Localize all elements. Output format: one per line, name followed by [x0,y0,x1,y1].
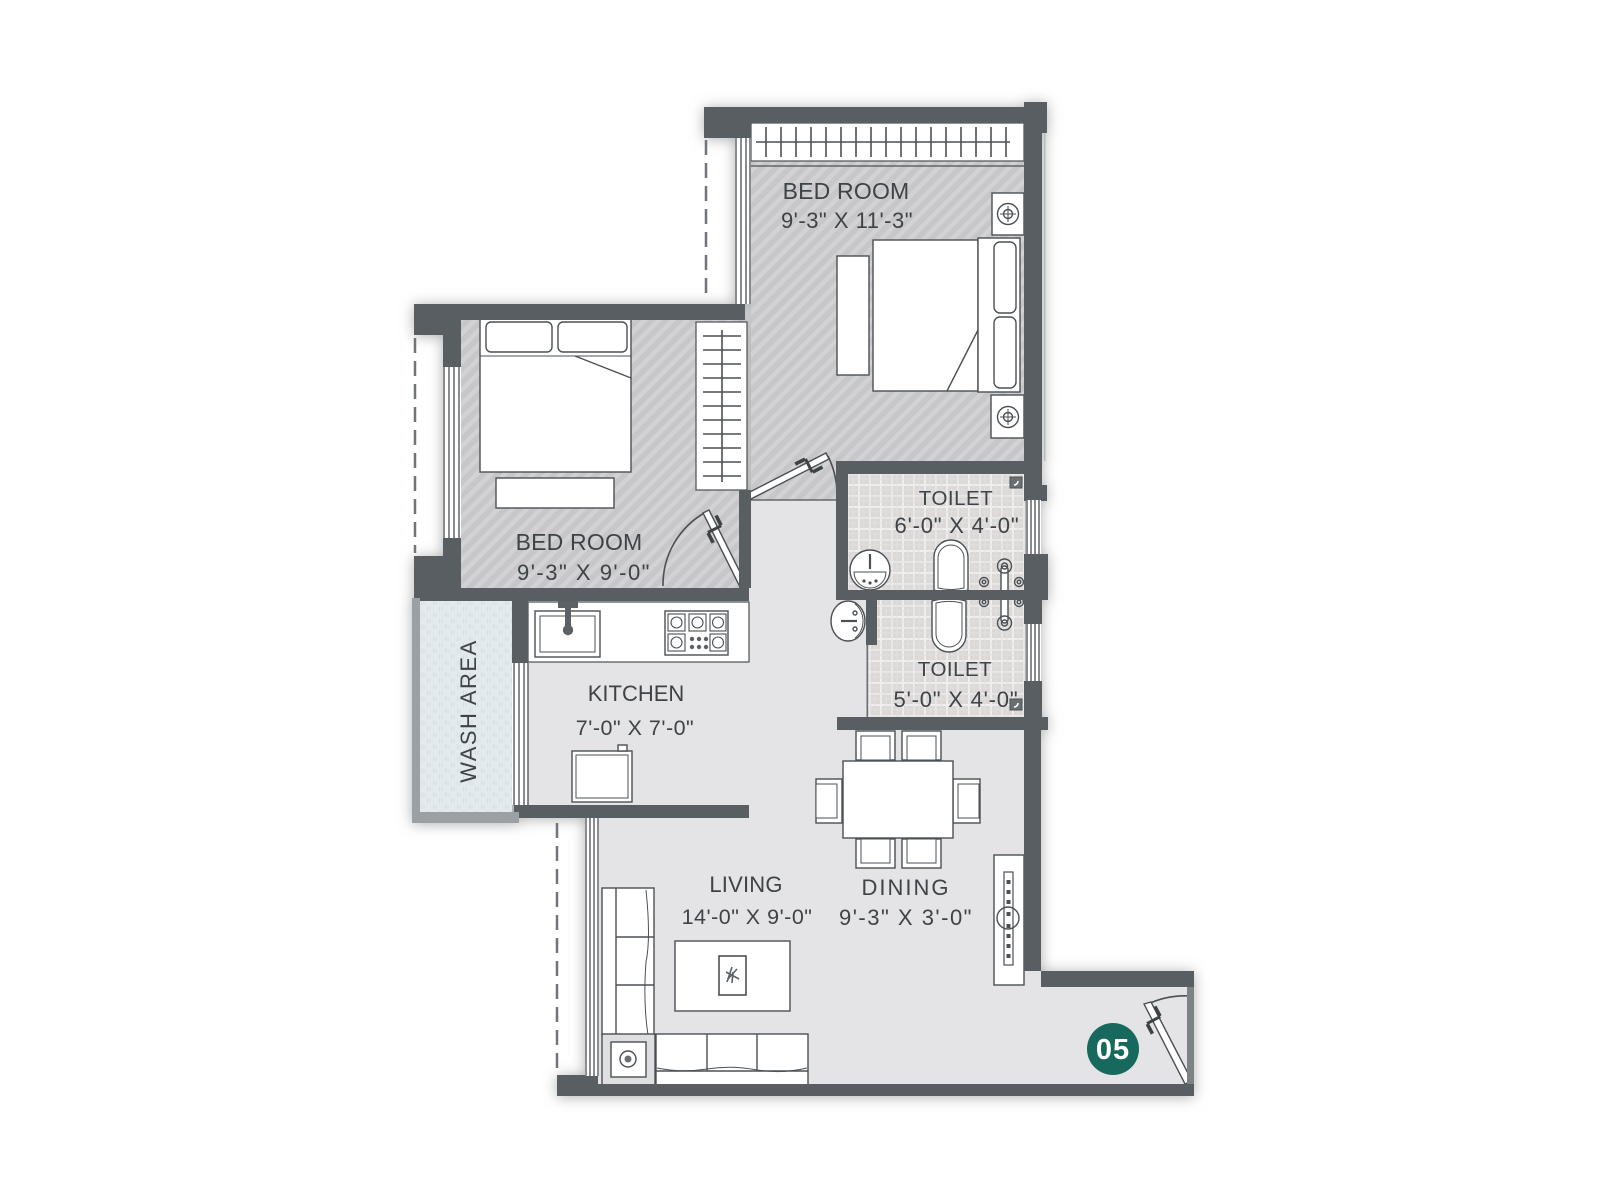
svg-text:BED ROOM: BED ROOM [783,178,910,204]
svg-text:9'-3" X 3'-0": 9'-3" X 3'-0" [839,905,973,930]
svg-text:BED ROOM: BED ROOM [516,529,643,555]
svg-text:9'-3" X 11'-3": 9'-3" X 11'-3" [781,208,913,233]
svg-text:LIVING: LIVING [709,872,782,897]
svg-text:7'-0" X 7'-0": 7'-0" X 7'-0" [576,716,694,740]
svg-text:5'-0" X 4'-0": 5'-0" X 4'-0" [894,687,1019,712]
svg-text:14'-0" X 9'-0": 14'-0" X 9'-0" [682,905,813,929]
svg-text:TOILET: TOILET [919,487,993,510]
svg-text:05: 05 [1096,1034,1130,1066]
svg-text:WASH AREA: WASH AREA [456,639,481,783]
svg-text:KITCHEN: KITCHEN [588,681,685,706]
svg-text:TOILET: TOILET [918,658,992,681]
svg-text:DINING: DINING [862,875,951,900]
svg-text:9'-3" X 9'-0": 9'-3" X 9'-0" [517,560,651,585]
svg-text:6'-0" X 4'-0": 6'-0" X 4'-0" [895,513,1020,538]
